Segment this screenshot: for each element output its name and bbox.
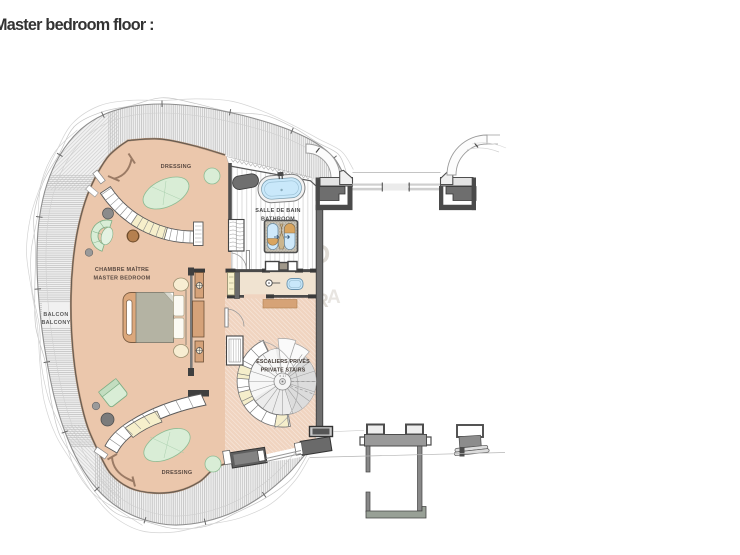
svg-text:CHAMBRE MAÎTRE: CHAMBRE MAÎTRE [95,265,149,273]
svg-text:DRESSING: DRESSING [162,470,193,476]
svg-text:DRESSING: DRESSING [161,164,192,170]
svg-text:MASTER BEDROOM: MASTER BEDROOM [94,276,151,282]
svg-text:BALCON: BALCON [43,312,68,318]
svg-text:ESCALIERS PRIVÉS: ESCALIERS PRIVÉS [256,357,310,365]
svg-text:A: A [327,287,341,308]
svg-text:BALCONY: BALCONY [41,320,70,326]
svg-text:PRIVATE STAIRS: PRIVATE STAIRS [261,368,306,374]
svg-text:SALLE DE BAIN: SALLE DE BAIN [255,208,300,214]
svg-text:x 17: x 17 [279,374,286,378]
svg-text:Master bedroom floor :: Master bedroom floor : [0,16,154,34]
